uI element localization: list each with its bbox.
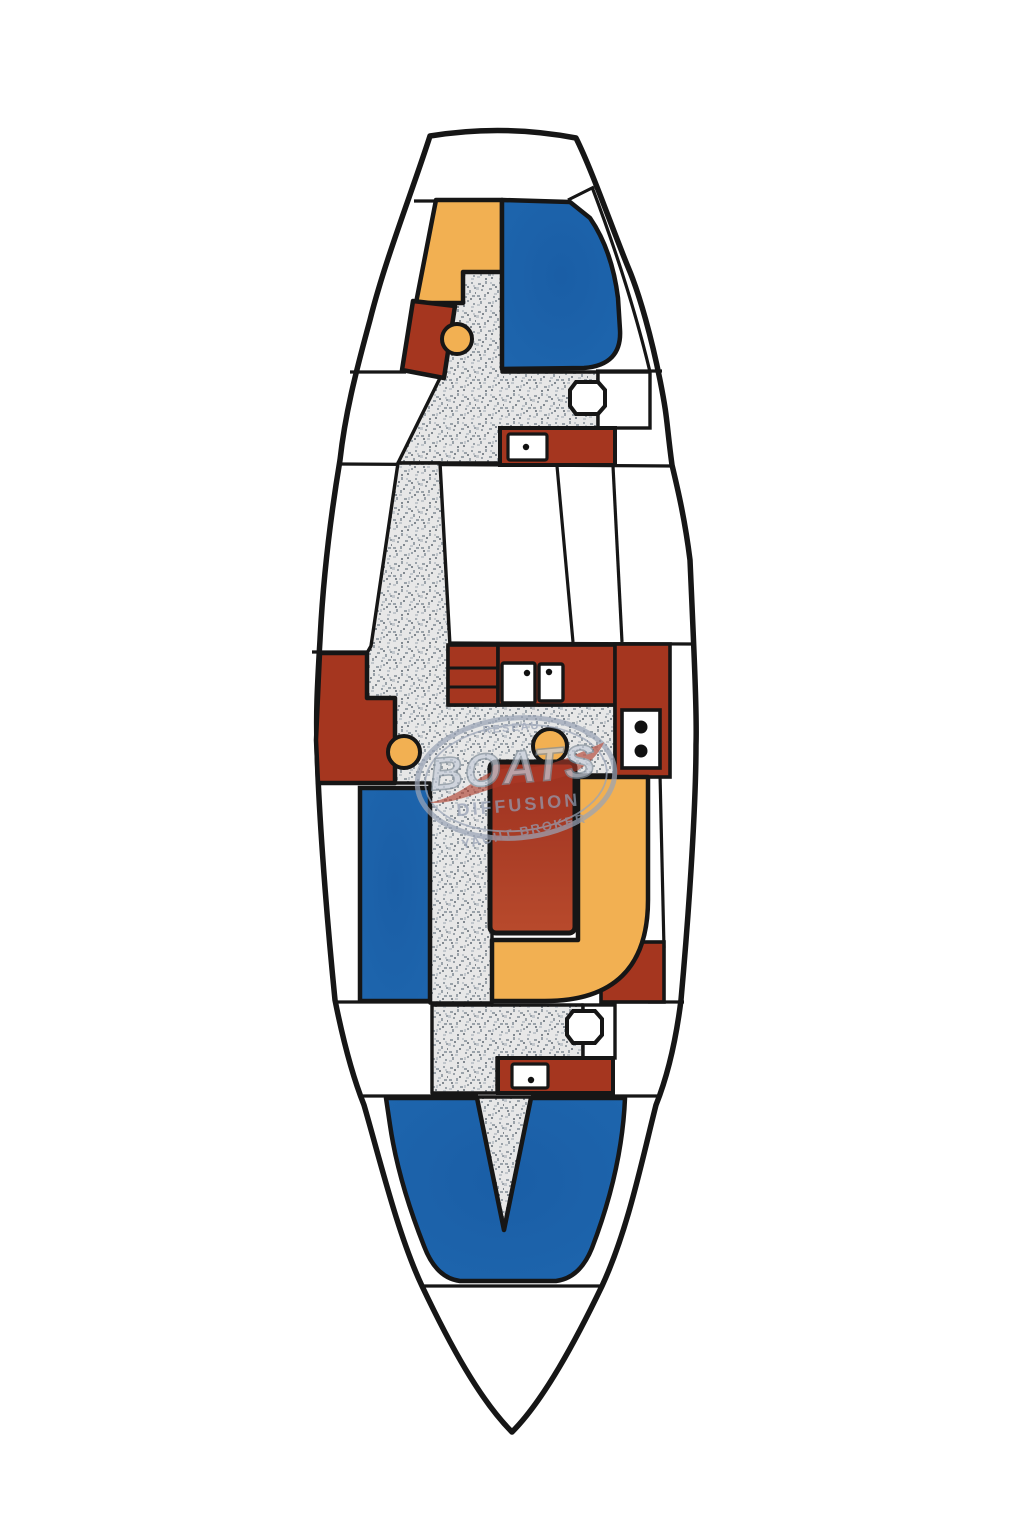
sink-fwd-head-drain-dot bbox=[528, 1077, 534, 1083]
sailboat-interior-plan: RESEAU BOATS DIFFUSION YACHT BROKER bbox=[0, 0, 1024, 1536]
toilet-forward bbox=[567, 1011, 602, 1043]
aft-stool bbox=[442, 324, 472, 354]
boat-floor-plan-page: RESEAU BOATS DIFFUSION YACHT BROKER bbox=[0, 0, 1024, 1536]
toilet-aft bbox=[570, 382, 605, 414]
galley-sink-1-dot bbox=[524, 670, 530, 676]
sink-aft-head-drain-dot bbox=[523, 444, 529, 450]
galley-sink-1 bbox=[502, 663, 535, 703]
galley-sink-2-dot bbox=[546, 669, 552, 675]
stove bbox=[622, 710, 660, 768]
stove-burner-dot-2 bbox=[635, 745, 648, 758]
stove-burner-dot-1 bbox=[635, 721, 648, 734]
galley-stool-port bbox=[388, 736, 420, 768]
galley-shelves bbox=[448, 645, 498, 705]
sink-fwd-head bbox=[512, 1064, 548, 1088]
settee-blue-port bbox=[360, 788, 430, 1001]
